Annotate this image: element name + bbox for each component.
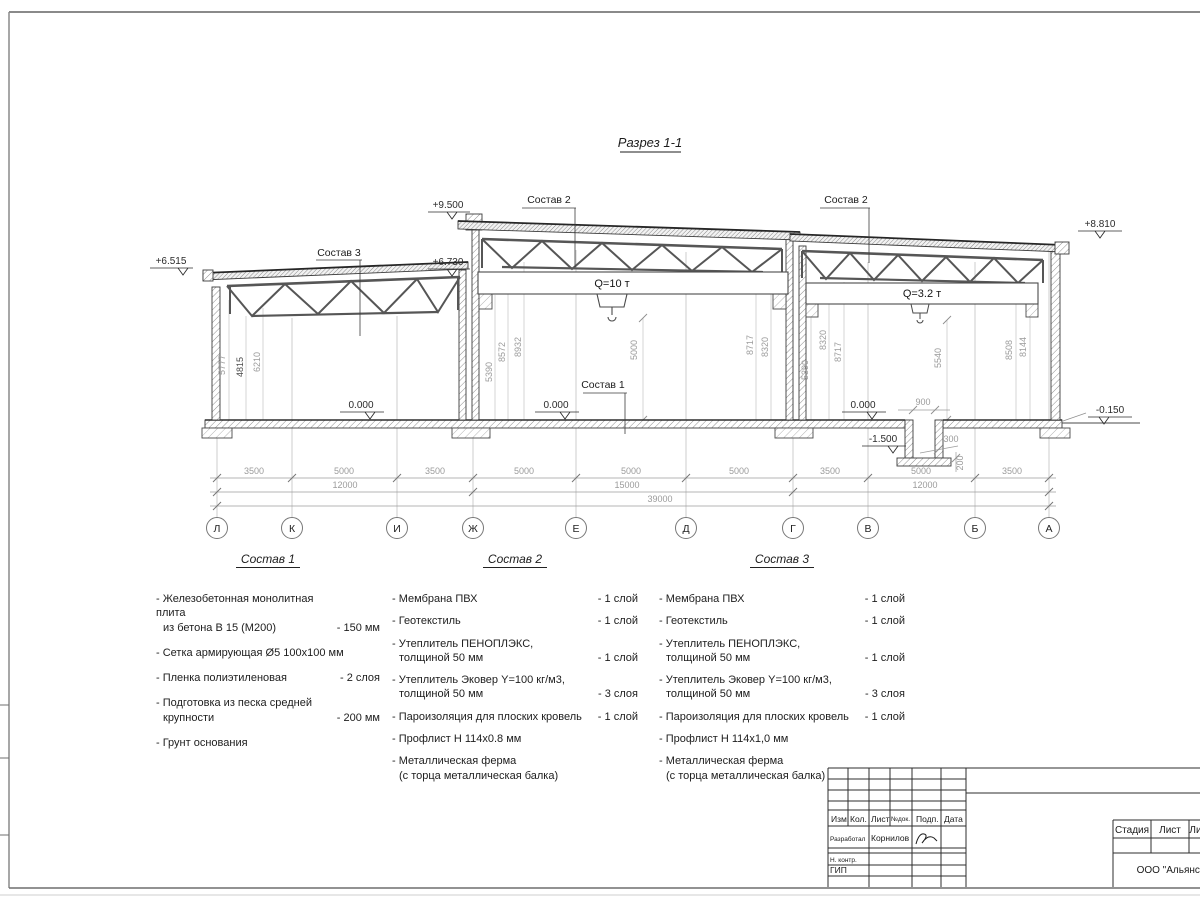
crane-10t-label: Q=10 т	[594, 278, 629, 290]
list-item: - Утеплитель ПЕНОПЛЭКС,толщиной 50 мм - …	[392, 637, 638, 666]
dim-span: 5000	[729, 466, 749, 476]
list-item: - Металлическая ферма(с торца металличес…	[392, 754, 638, 783]
composition-1: Состав 1 - Железобетонная монолитная пли…	[156, 552, 380, 761]
vdim: 8320	[818, 330, 828, 350]
axis-bubble-label: Ж	[468, 523, 478, 535]
axis-bubble-label: Е	[572, 523, 579, 535]
vdim: 6210	[252, 352, 262, 372]
axis-bubble-label: Г	[790, 523, 796, 535]
leader-sostav3: Состав 3	[317, 247, 361, 259]
dim-total: 39000	[647, 494, 672, 504]
vdim: 8572	[497, 342, 507, 362]
dim-span: 5000	[621, 466, 641, 476]
elev-left-roof: +6.730	[433, 257, 464, 268]
dim-span: 5000	[514, 466, 534, 476]
pit-width-label: 900	[915, 397, 930, 407]
tb-company: ООО "Альянс"	[1137, 865, 1200, 876]
left-building-right-column	[459, 270, 466, 420]
axis-bubble-label: Б	[972, 523, 979, 535]
left-column	[212, 287, 220, 420]
crane-corbels-right	[806, 304, 1038, 317]
dim-span: 3500	[244, 466, 264, 476]
dim-group: 12000	[332, 480, 357, 490]
list-item: - Грунт основания	[156, 736, 380, 750]
drawing-sheet: Разрез 1-1	[0, 0, 1200, 900]
dim-span: 5000	[911, 466, 931, 476]
tb-sheets-header: Лис	[1189, 825, 1200, 836]
list-item: - Мембрана ПВХ - 1 слой	[659, 592, 905, 606]
vdim: 5000	[629, 340, 639, 360]
list-item: - Пароизоляция для плоских кровель - 1 с…	[659, 710, 905, 724]
crane-3t-label: Q=3.2 т	[903, 288, 941, 300]
elev-left-eave: +6.515	[156, 256, 187, 267]
leader-sostav1: Состав 1	[581, 379, 625, 391]
tb-col-ndok: №док.	[891, 816, 910, 823]
list-item: - Пленка полиэтиленовая - 2 слоя	[156, 671, 380, 685]
crane-hook-right	[911, 304, 929, 323]
vdim: 5540	[933, 348, 943, 368]
list-item: - Мембрана ПВХ - 1 слой	[392, 592, 638, 606]
pit-ledge-label: 300	[943, 434, 958, 444]
elev-pit-bottom: -1.500	[869, 434, 898, 445]
leader-sostav2-middle: Состав 2	[527, 194, 571, 206]
list-item: - Утеплитель Эковер Y=100 кг/м3,толщиной…	[659, 673, 905, 702]
axis-bubbles: Л К И Ж Е Д Г В Б А	[207, 518, 1060, 539]
list-item: - Геотекстиль - 1 слой	[659, 614, 905, 628]
list-item: - Утеплитель Эковер Y=100 кг/м3,толщиной…	[392, 673, 638, 702]
tb-col-list: Лист	[871, 814, 890, 824]
dim-span: 3500	[1002, 466, 1022, 476]
middle-building: Q=10 т	[458, 214, 800, 420]
dim-group: 15000	[614, 480, 639, 490]
axis-bubble-label: А	[1045, 523, 1052, 535]
axis-bubble-label: И	[393, 523, 401, 535]
view-title: Разрез 1-1	[618, 135, 682, 152]
axis-bubble-label: Д	[682, 523, 689, 535]
vdim: 5390	[484, 362, 494, 382]
tb-ncontr-label: Н. контр.	[830, 857, 857, 864]
composition-2: Состав 2 - Мембрана ПВХ - 1 слой - Геоте…	[392, 552, 638, 791]
list-item: - Профлист Н 114х0.8 мм	[392, 732, 638, 746]
list-item: - Пароизоляция для плоских кровель - 1 с…	[392, 710, 638, 724]
elev-right-top: +8.810	[1085, 219, 1116, 230]
vertical-dims: 5777 4815 6210 5390 8572 8932 5000 8717 …	[217, 330, 1028, 382]
vdim: 8717	[833, 342, 843, 362]
tb-stage-header: Стадия	[1115, 825, 1149, 836]
crane-beam-10t	[478, 272, 788, 294]
tb-col-data: Дата	[944, 814, 963, 824]
tb-gip-label: ГИП	[830, 865, 847, 875]
vdim: 5777	[217, 355, 227, 375]
crane-corbels-middle	[479, 294, 786, 309]
composition-3: Состав 3 - Мембрана ПВХ - 1 слой - Геоте…	[659, 552, 905, 791]
list-item: - Железобетонная монолитная плитаиз бето…	[156, 592, 380, 635]
dim-group: 12000	[912, 480, 937, 490]
floor-slab	[205, 413, 1140, 428]
crane-hook-middle	[597, 294, 627, 321]
dim-span: 5000	[334, 466, 354, 476]
axis-bubble-label: К	[289, 523, 296, 535]
tb-signature	[916, 834, 937, 844]
leader-sostav2-right: Состав 2	[824, 194, 868, 206]
list-item: - Подготовка из песка среднейкрупности -…	[156, 696, 380, 725]
vdim: 5390	[800, 360, 810, 380]
tb-col-podp: Подп.	[916, 814, 939, 824]
vdim: 8717	[745, 335, 755, 355]
middle-left-column	[472, 227, 479, 420]
elev-mid-top: +9.500	[433, 200, 464, 211]
list-item: - Сетка армирующая Ø5 100х100 мм	[156, 646, 380, 660]
left-truss	[227, 277, 460, 316]
vdim: 8320	[760, 337, 770, 357]
list-item: - Профлист Н 114х1,0 мм	[659, 732, 905, 746]
elevation-marks: +6.515 +9.500 +6.730 +8.810 0.000 0.000 …	[150, 200, 1132, 453]
tb-developed-label: Разработал	[830, 835, 866, 843]
tb-col-izm: Изм.	[831, 814, 849, 824]
axis-bubble-label: В	[864, 523, 871, 535]
vdim: 8508	[1004, 340, 1014, 360]
composition-1-title: Состав 1	[156, 552, 380, 566]
tb-developed-name: Корнилов	[871, 833, 910, 843]
vdim: 4815	[235, 357, 245, 377]
middle-truss	[482, 239, 782, 272]
middle-right-column	[786, 237, 793, 420]
elev-zero-right: 0.000	[850, 400, 875, 411]
list-item: - Утеплитель ПЕНОПЛЭКС,толщиной 50 мм - …	[659, 637, 905, 666]
tb-sheet-header: Лист	[1159, 825, 1181, 836]
dim-span: 3500	[425, 466, 445, 476]
list-item: - Металлическая ферма(с торца металличес…	[659, 754, 905, 783]
composition-2-title: Состав 2	[392, 552, 638, 566]
dimension-rows: 3500 5000 3500 5000 5000 5000 3500 5000 …	[210, 466, 1056, 510]
list-item: - Геотекстиль - 1 слой	[392, 614, 638, 628]
right-truss	[802, 251, 1043, 283]
dim-span: 3500	[820, 466, 840, 476]
vdim: 8932	[513, 337, 523, 357]
view-title-text: Разрез 1-1	[618, 135, 682, 150]
composition-3-title: Состав 3	[659, 552, 905, 566]
axis-bubble-label: Л	[214, 523, 221, 535]
tb-col-kol: Кол.	[850, 814, 867, 824]
elev-zero-middle: 0.000	[543, 400, 568, 411]
vdim: 8144	[1018, 337, 1028, 357]
left-building	[203, 262, 468, 420]
elev-ground: -0.150	[1096, 405, 1125, 416]
right-column	[1051, 247, 1060, 420]
right-building: Q=3.2 т	[790, 234, 1069, 420]
elev-zero-left: 0.000	[348, 400, 373, 411]
